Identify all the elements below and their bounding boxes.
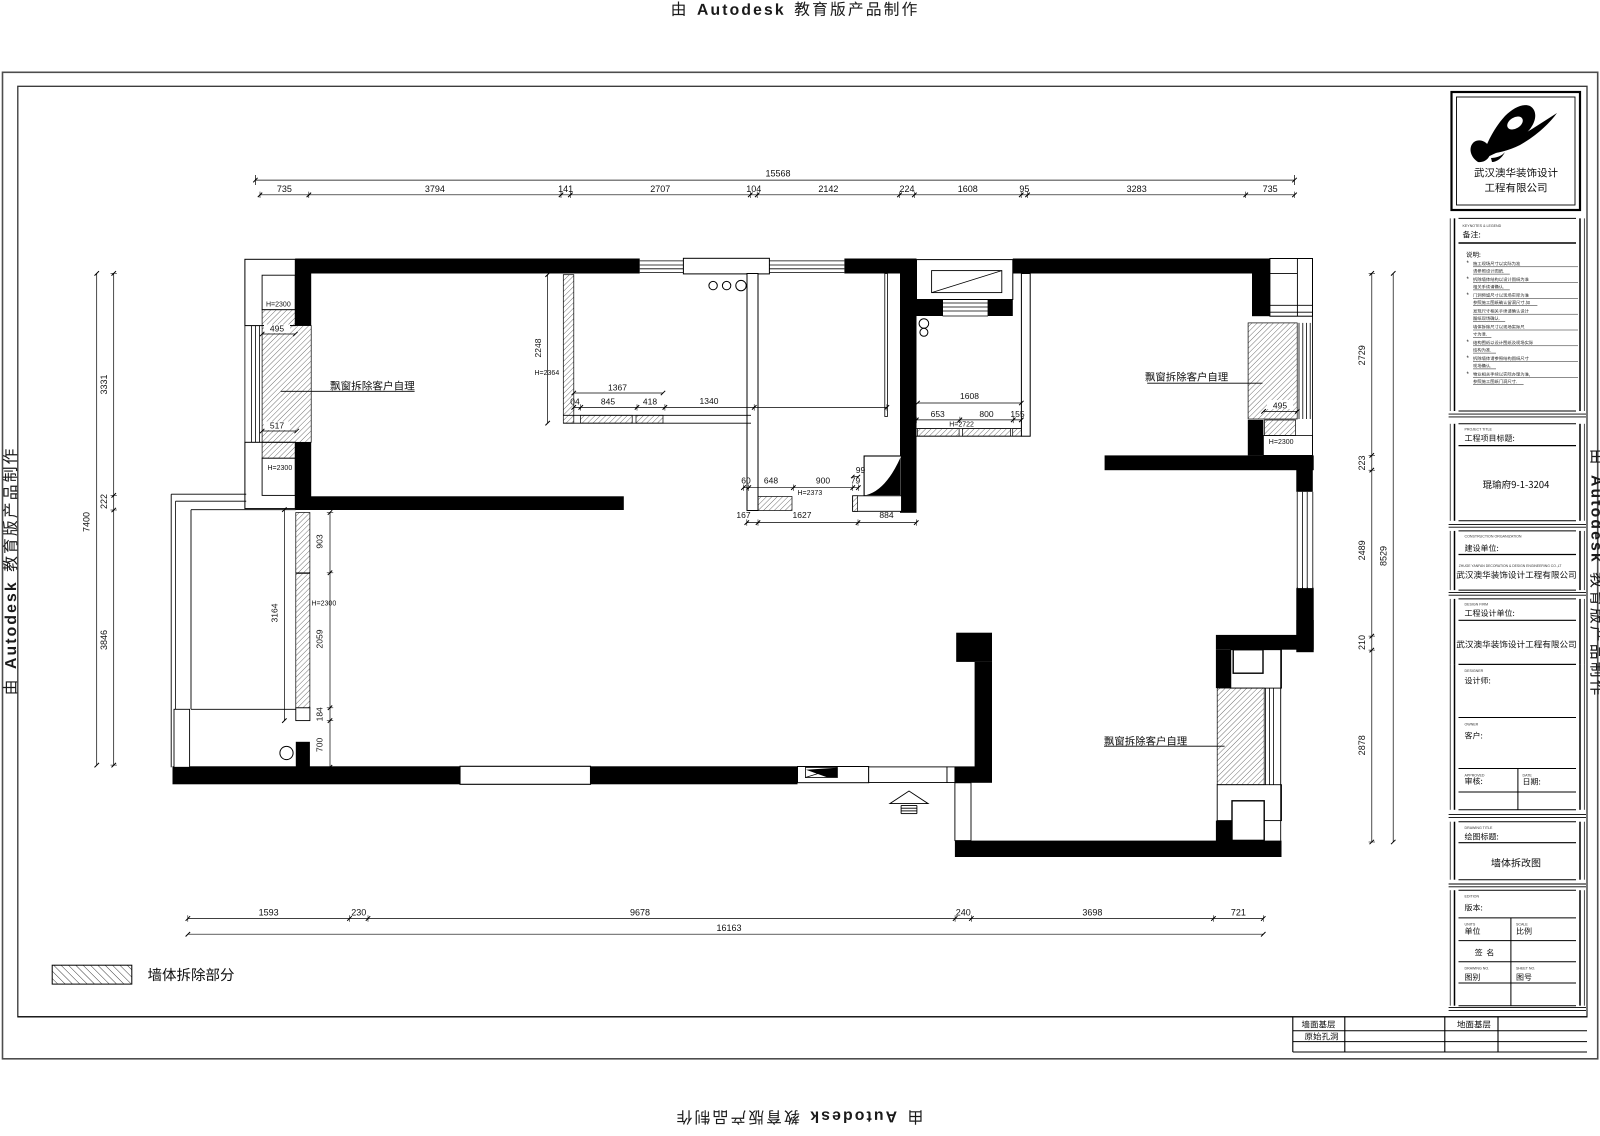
svg-text:OWNER: OWNER — [1465, 723, 1479, 727]
svg-text:1367: 1367 — [608, 382, 627, 392]
svg-text:210: 210 — [1357, 635, 1367, 650]
svg-text:60: 60 — [741, 475, 751, 485]
svg-text:167: 167 — [736, 510, 750, 520]
svg-text:7400: 7400 — [82, 512, 92, 532]
svg-text:16163: 16163 — [716, 923, 741, 933]
svg-text:884: 884 — [879, 510, 893, 520]
svg-text:H=2373: H=2373 — [798, 490, 823, 497]
svg-text:900: 900 — [816, 475, 830, 485]
svg-text:3698: 3698 — [1082, 908, 1102, 918]
svg-text:735: 735 — [1263, 184, 1278, 194]
svg-text:141: 141 — [558, 184, 573, 194]
svg-text:DRAWING NO.: DRAWING NO. — [1465, 967, 1490, 971]
svg-text:2248: 2248 — [533, 338, 543, 357]
svg-text:495: 495 — [1273, 401, 1287, 411]
svg-text:H=2300: H=2300 — [1269, 439, 1294, 446]
svg-text:H=2300: H=2300 — [312, 601, 337, 608]
svg-text:721: 721 — [1231, 908, 1246, 918]
svg-text:230: 230 — [351, 908, 366, 918]
svg-text:653: 653 — [931, 409, 945, 419]
svg-text:3846: 3846 — [99, 630, 109, 650]
svg-text:223: 223 — [1357, 455, 1367, 470]
svg-text:APPROVED: APPROVED — [1465, 774, 1485, 778]
svg-text:2878: 2878 — [1357, 735, 1367, 755]
svg-text:EDITION: EDITION — [1465, 895, 1480, 899]
svg-text:222: 222 — [99, 494, 109, 509]
svg-text:240: 240 — [956, 908, 971, 918]
svg-text:2707: 2707 — [650, 184, 670, 194]
svg-text:95: 95 — [1019, 184, 1029, 194]
svg-text:1608: 1608 — [958, 184, 978, 194]
svg-text:104: 104 — [746, 184, 761, 194]
svg-text:CONSTRUCTION ORGANIZATION: CONSTRUCTION ORGANIZATION — [1465, 535, 1522, 539]
svg-text:DESIGN FIRM: DESIGN FIRM — [1465, 603, 1489, 607]
svg-text:418: 418 — [643, 397, 657, 407]
svg-text:495: 495 — [270, 324, 284, 334]
svg-text:SHEET NO.: SHEET NO. — [1516, 967, 1535, 971]
svg-text:3331: 3331 — [99, 374, 109, 394]
svg-text:3164: 3164 — [270, 603, 280, 622]
svg-text:648: 648 — [764, 475, 778, 485]
svg-text:99: 99 — [856, 465, 866, 475]
svg-text:2142: 2142 — [818, 184, 838, 194]
svg-text:700: 700 — [315, 738, 325, 752]
svg-text:DRAWING TITLE: DRAWING TITLE — [1465, 826, 1494, 830]
svg-text:UNITS: UNITS — [1465, 923, 1476, 927]
svg-text:903: 903 — [315, 534, 325, 548]
svg-text:3794: 3794 — [425, 184, 445, 194]
svg-text:8529: 8529 — [1378, 546, 1388, 566]
svg-text:2729: 2729 — [1357, 345, 1367, 365]
svg-text:H=2364: H=2364 — [535, 370, 560, 377]
svg-text:PROJECT TITLE: PROJECT TITLE — [1465, 428, 1493, 432]
svg-text:2059: 2059 — [315, 629, 325, 648]
svg-text:DESIGNER: DESIGNER — [1465, 669, 1484, 673]
svg-text:SCALE: SCALE — [1516, 923, 1528, 927]
svg-text:04: 04 — [570, 397, 580, 407]
svg-text:224: 224 — [899, 184, 914, 194]
svg-text:1593: 1593 — [259, 908, 279, 918]
svg-text:3283: 3283 — [1127, 184, 1147, 194]
svg-text:800: 800 — [979, 409, 993, 419]
svg-text:845: 845 — [601, 397, 615, 407]
svg-text:DATE: DATE — [1523, 774, 1533, 778]
svg-text:1608: 1608 — [960, 391, 979, 401]
svg-text:KEYNOTES & LEGEND: KEYNOTES & LEGEND — [1463, 224, 1502, 228]
svg-text:1627: 1627 — [793, 510, 812, 520]
svg-text:184: 184 — [315, 707, 325, 721]
svg-text:735: 735 — [277, 184, 292, 194]
svg-text:H=2300: H=2300 — [268, 465, 293, 472]
svg-text:H=2722: H=2722 — [949, 421, 974, 428]
svg-text:H=2300: H=2300 — [266, 302, 291, 309]
svg-text:ZHUGE YANFAN DECORATION & DESI: ZHUGE YANFAN DECORATION & DESIGN ENGINEE… — [1459, 564, 1562, 568]
svg-text:15568: 15568 — [765, 169, 790, 179]
svg-text:517: 517 — [270, 421, 284, 431]
svg-text:9678: 9678 — [630, 908, 650, 918]
svg-text:155: 155 — [1010, 409, 1024, 419]
svg-text:1340: 1340 — [700, 396, 719, 406]
svg-text:2489: 2489 — [1357, 540, 1367, 560]
